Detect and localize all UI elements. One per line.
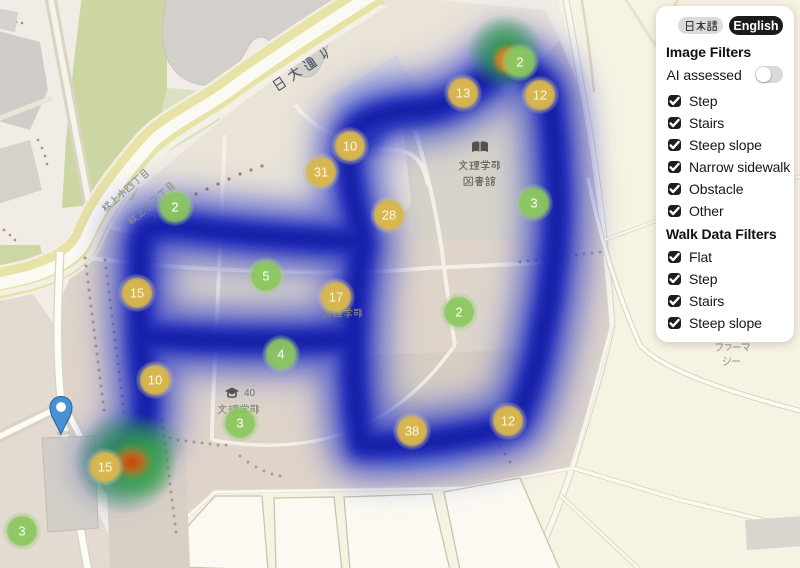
svg-text:10: 10 [148, 373, 162, 388]
svg-text:38: 38 [405, 424, 419, 439]
svg-text:2: 2 [171, 200, 178, 215]
svg-text:40: 40 [244, 388, 256, 399]
svg-text:2: 2 [516, 55, 523, 70]
svg-text:28: 28 [382, 208, 396, 223]
svg-text:4: 4 [277, 347, 284, 362]
svg-text:10: 10 [343, 139, 357, 154]
svg-text:12: 12 [501, 414, 515, 429]
svg-text:17: 17 [329, 290, 343, 305]
svg-text:2: 2 [455, 305, 462, 320]
svg-text:3: 3 [530, 196, 537, 211]
svg-text:12: 12 [533, 88, 547, 103]
svg-text:3: 3 [18, 524, 25, 539]
svg-text:31: 31 [314, 165, 328, 180]
svg-text:5: 5 [262, 269, 269, 284]
svg-text:15: 15 [130, 286, 144, 301]
svg-text:13: 13 [456, 86, 470, 101]
svg-text:15: 15 [98, 460, 112, 475]
svg-text:3: 3 [236, 416, 243, 431]
